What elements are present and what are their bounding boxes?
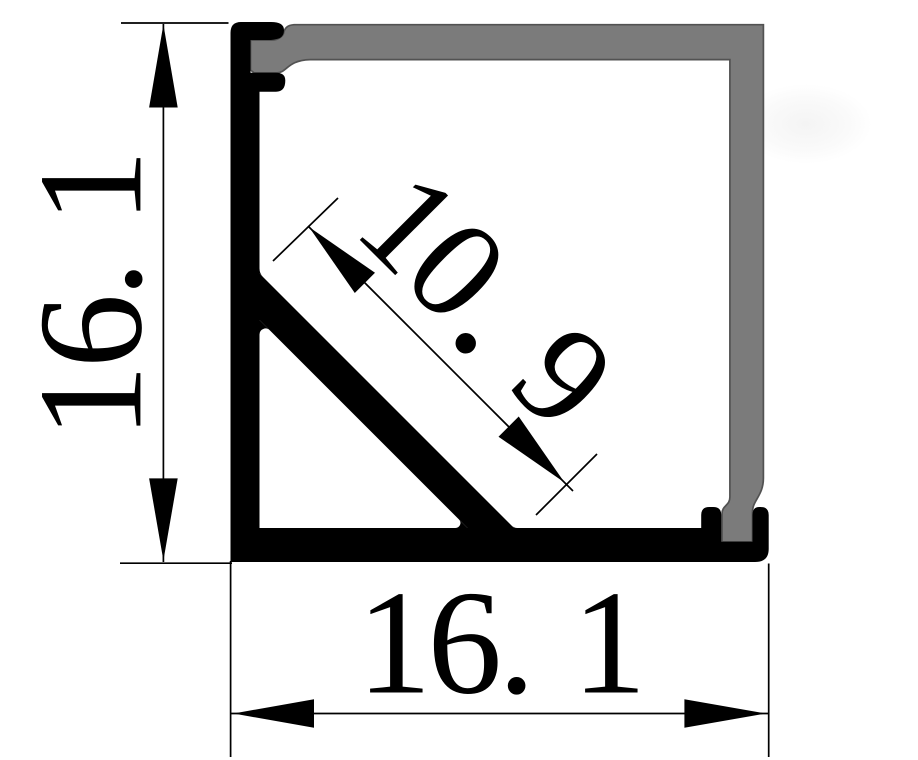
svg-text:16. 1: 16. 1 [357, 561, 643, 726]
svg-text:16. 1: 16. 1 [8, 153, 173, 439]
